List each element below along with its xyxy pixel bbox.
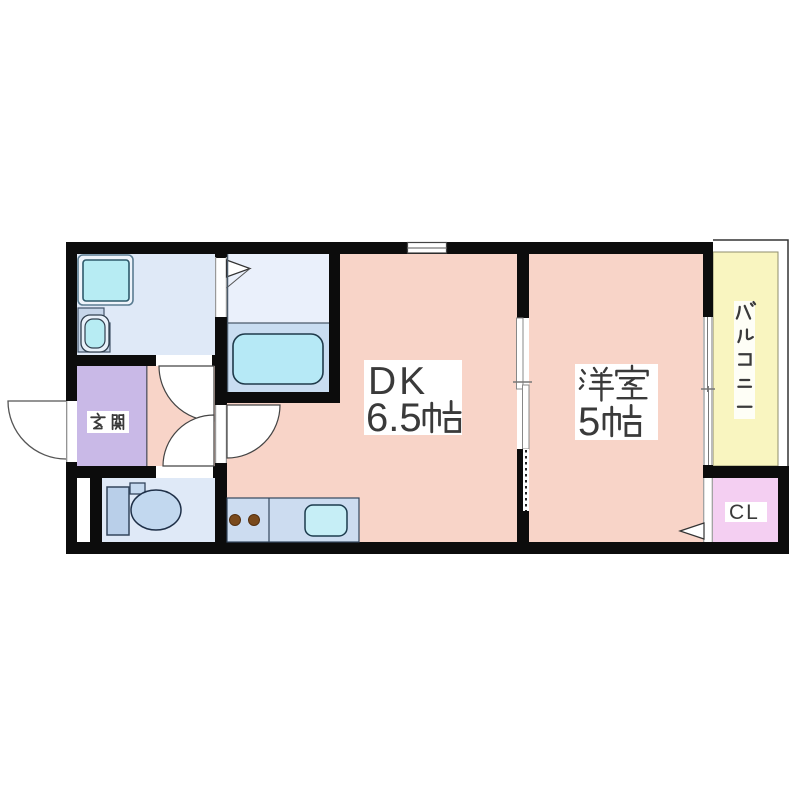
svg-text:5: 5 [578,400,600,444]
svg-text:CL: CL [729,501,760,524]
svg-text:6.5: 6.5 [366,396,422,440]
